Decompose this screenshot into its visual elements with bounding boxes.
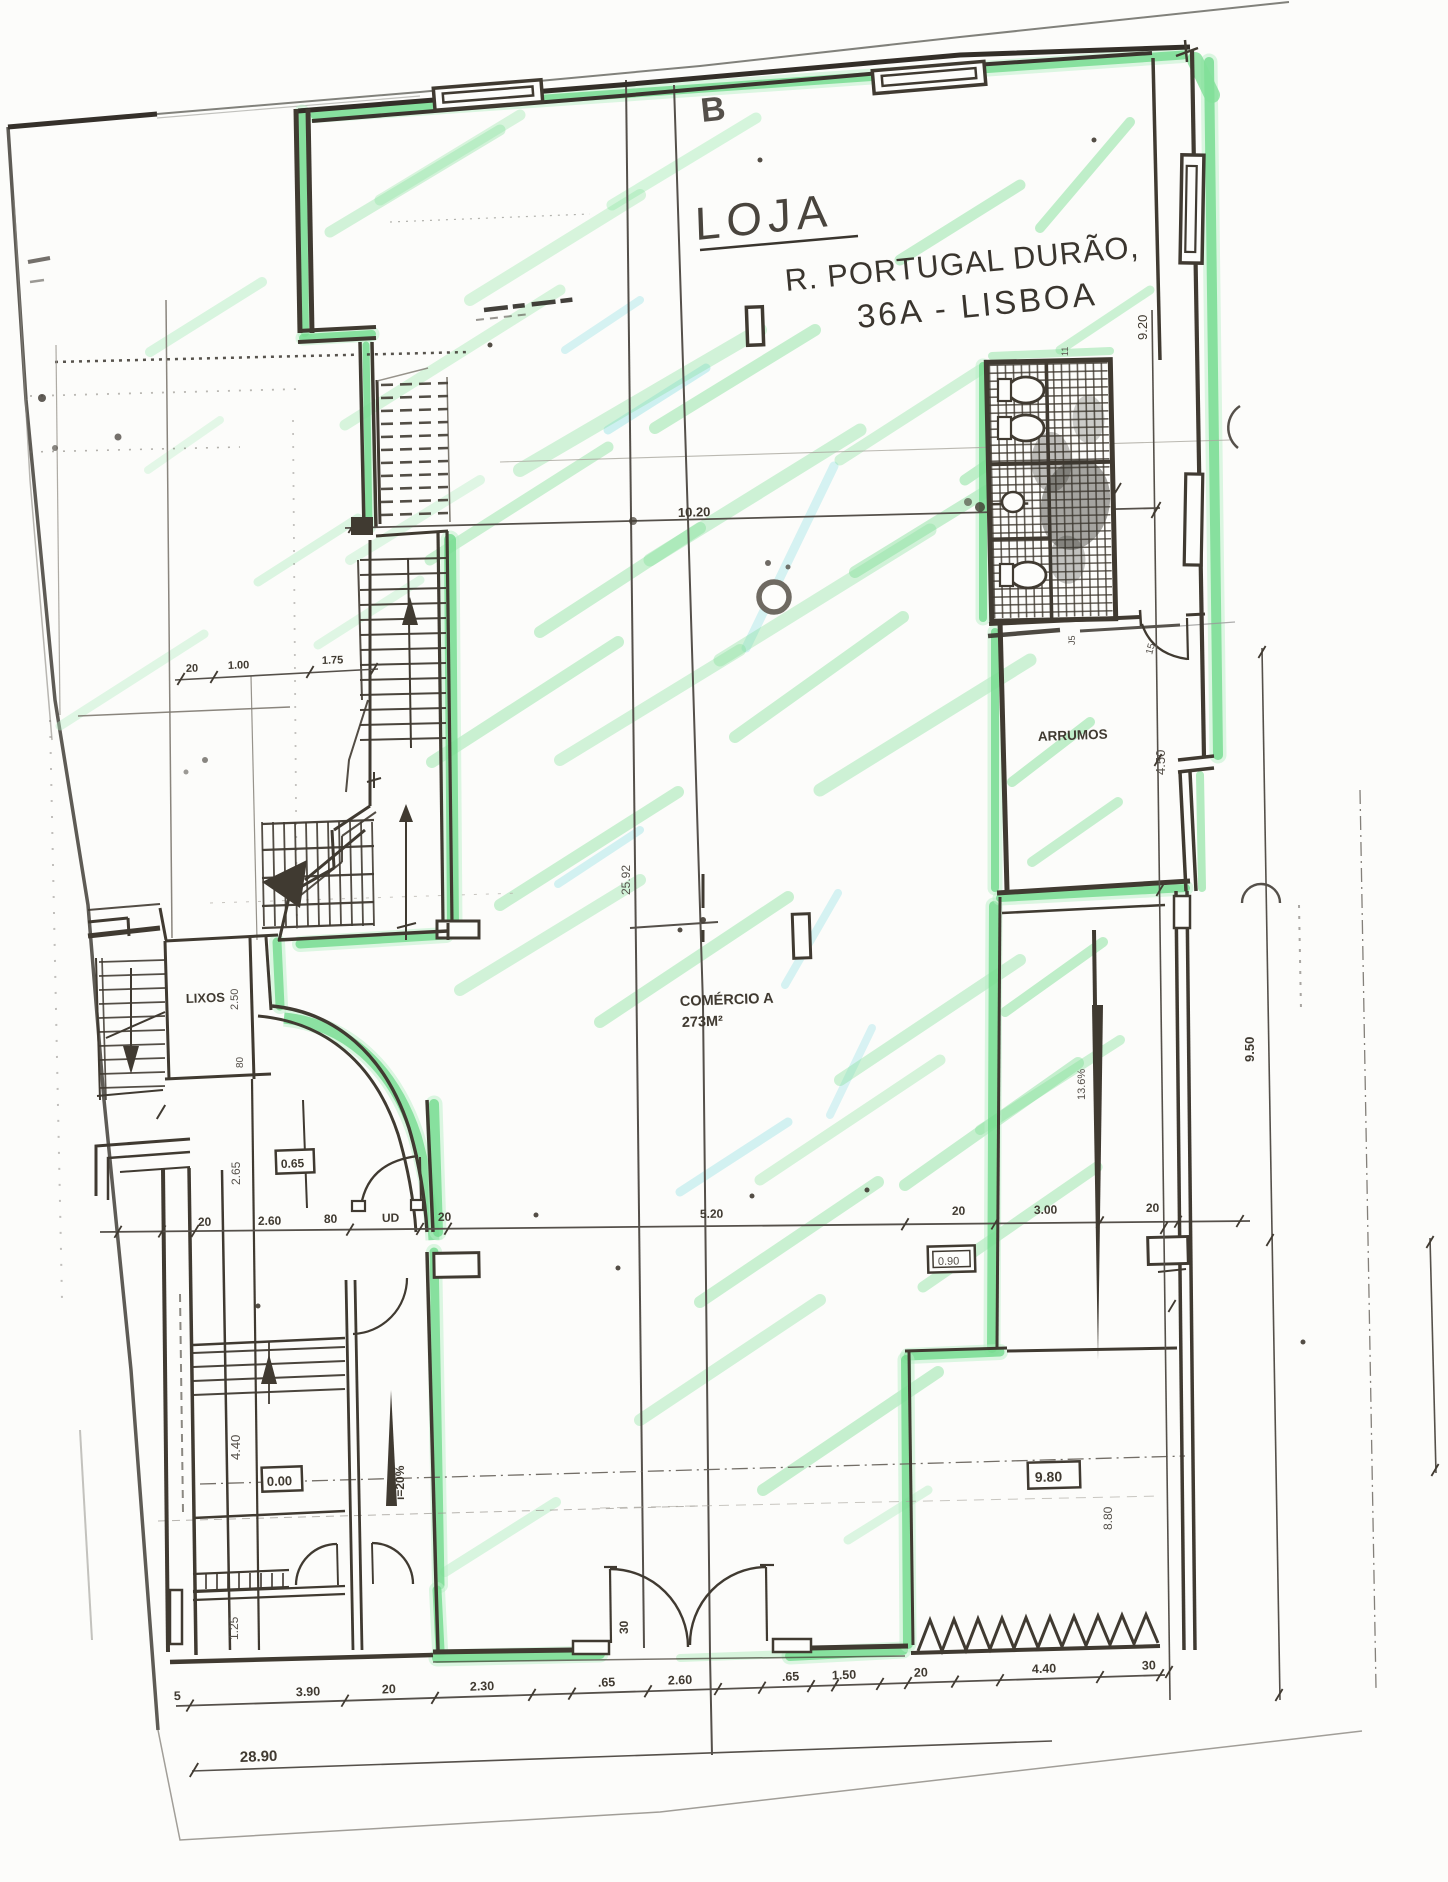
svg-text:20: 20 (952, 1204, 966, 1218)
svg-text:0.65: 0.65 (281, 1156, 305, 1171)
svg-text:11: 11 (1060, 347, 1070, 356)
svg-text:0.90: 0.90 (938, 1255, 960, 1268)
svg-text:1.25: 1.25 (227, 1616, 241, 1640)
svg-text:2.60: 2.60 (258, 1214, 282, 1228)
svg-text:9.80: 9.80 (1035, 1468, 1063, 1485)
svg-text:J5: J5 (1067, 635, 1077, 645)
svg-text:1.75: 1.75 (322, 654, 344, 667)
svg-text:B: B (699, 90, 727, 130)
svg-text:5: 5 (174, 1689, 181, 1703)
svg-text:3.90: 3.90 (296, 1684, 321, 1699)
svg-text:1.50: 1.50 (832, 1668, 857, 1683)
svg-text:20: 20 (382, 1682, 396, 1696)
svg-text:.65: .65 (598, 1675, 616, 1690)
svg-text:2.65: 2.65 (229, 1161, 243, 1185)
svg-text:0.00: 0.00 (267, 1473, 293, 1489)
svg-text:1.00: 1.00 (228, 659, 250, 672)
svg-text:5.20: 5.20 (700, 1207, 724, 1221)
svg-text:30: 30 (617, 1620, 631, 1634)
svg-text:20: 20 (1146, 1201, 1160, 1215)
svg-text:4.40: 4.40 (228, 1435, 243, 1460)
svg-text:2.60: 2.60 (668, 1673, 693, 1688)
svg-text:20: 20 (186, 663, 199, 675)
svg-text:20: 20 (198, 1215, 212, 1229)
svg-text:9.20: 9.20 (1135, 315, 1150, 340)
svg-text:3.00: 3.00 (1034, 1203, 1058, 1217)
svg-text:2.50: 2.50 (229, 989, 241, 1010)
svg-text:9.50: 9.50 (1242, 1037, 1257, 1062)
svg-text:.65: .65 (782, 1669, 800, 1684)
svg-text:28.90: 28.90 (240, 1748, 278, 1766)
svg-text:80: 80 (324, 1212, 338, 1226)
svg-text:4.40: 4.40 (1032, 1661, 1057, 1676)
svg-text:8.80: 8.80 (1101, 1506, 1115, 1530)
svg-text:80: 80 (235, 1056, 246, 1068)
svg-text:LIXOS: LIXOS (186, 990, 226, 1006)
svg-text:2.30: 2.30 (470, 1679, 495, 1694)
svg-text:COMÉRCIO A: COMÉRCIO A (680, 990, 775, 1010)
svg-text:13.6%: 13.6% (1076, 1069, 1088, 1100)
svg-text:ARRUMOS: ARRUMOS (1038, 727, 1108, 744)
svg-text:4.50: 4.50 (1153, 750, 1168, 775)
svg-text:10.20: 10.20 (678, 504, 711, 520)
svg-text:UD: UD (382, 1211, 400, 1225)
svg-text:20: 20 (914, 1665, 928, 1679)
svg-text:20: 20 (438, 1210, 452, 1224)
svg-text:i=20%: i=20% (393, 1465, 407, 1500)
svg-text:25.92: 25.92 (619, 865, 633, 895)
svg-text:30: 30 (1142, 1658, 1156, 1672)
svg-text:273M²: 273M² (682, 1014, 724, 1031)
